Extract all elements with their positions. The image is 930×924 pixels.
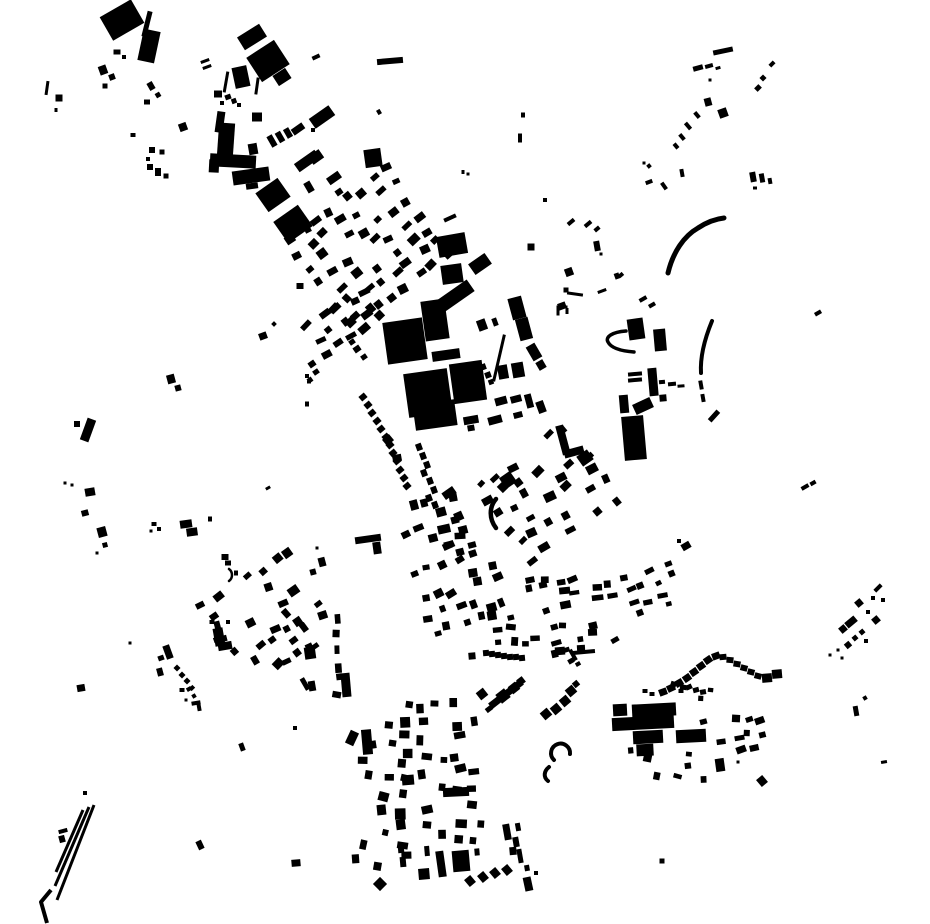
building-footprint [155,168,161,176]
building-footprint [316,547,319,550]
building-footprint [382,317,427,364]
building-footprint [180,519,193,529]
building-footprint [726,657,733,664]
building-footprint [577,645,585,651]
building-footprint [452,850,471,872]
building-footprint [364,770,372,780]
building-footprint [334,614,340,624]
building-footprint [421,753,432,761]
building-footprint [613,704,628,717]
building-footprint [335,663,342,673]
building-footprint [372,542,382,555]
building-footprint [311,128,315,132]
building-footprint [477,820,484,828]
building-footprint [164,174,169,179]
building-footprint [559,623,566,629]
building-footprint [700,689,707,695]
building-footprint [489,651,496,658]
building-footprint [519,655,526,662]
building-footprint [248,143,259,155]
building-footprint [71,484,74,487]
building-footprint [668,382,676,387]
building-footprint [684,762,691,769]
building-footprint [732,715,740,723]
building-footprint [103,84,108,89]
building-footprint [518,134,522,143]
building-footprint [468,652,476,660]
building-footprint [76,684,85,692]
building-footprint [470,716,478,726]
building-footprint [488,561,497,570]
building-footprint [621,415,647,461]
building-footprint [114,50,121,55]
building-footprint [401,852,411,859]
building-footprint [146,157,150,161]
building-footprint [487,610,498,620]
building-footprint [440,263,463,285]
building-footprint [511,362,525,379]
building-footprint [493,627,503,633]
building-footprint [385,721,394,729]
building-footprint [600,253,603,256]
building-footprint [619,395,630,414]
building-footprint [653,329,667,352]
building-footprint [604,580,611,588]
building-footprint [701,776,707,783]
building-footprint [462,170,465,174]
building-footprint [438,830,446,839]
building-footprint [643,162,646,165]
building-footprint [150,530,153,533]
building-footprint [467,173,470,176]
building-footprint [744,730,750,737]
city-figure-ground-svg [0,0,930,924]
building-footprint [186,527,198,536]
building-footprint [454,835,463,844]
building-footprint [522,641,529,646]
building-footprint [416,735,423,745]
building-footprint [373,862,382,871]
building-footprint [405,701,413,709]
building-footprint [452,722,462,731]
building-footprint [588,629,597,636]
building-footprint [96,552,99,555]
building-footprint [483,650,490,657]
building-footprint [528,244,535,251]
building-footprint [430,700,438,706]
building-footprint [422,821,431,829]
building-footprint [209,159,220,173]
building-footprint [677,384,684,388]
building-footprint [225,561,231,566]
building-footprint [454,532,465,539]
building-footprint [577,636,583,642]
building-footprint [543,198,547,202]
building-footprint [762,673,773,683]
building-footprint [336,673,342,680]
figure-ground-map [0,0,930,924]
building-footprint [293,726,297,730]
building-footprint [442,621,451,630]
building-footprint [252,113,262,122]
building-footprint [83,791,87,795]
building-footprint [473,577,483,587]
building-footprint [440,757,447,763]
building-footprint [633,730,664,745]
building-footprint [650,692,655,696]
building-footprint [468,568,478,578]
building-footprint [864,639,868,643]
building-footprint [55,108,58,112]
building-footprint [829,654,832,657]
building-footprint [468,768,479,775]
building-footprint [234,571,238,576]
building-footprint [566,308,569,314]
building-footprint [376,804,386,815]
building-footprint [160,150,165,155]
building-footprint [511,637,518,646]
building-footprint [871,596,875,600]
building-footprint [226,620,230,624]
building-footprint [881,598,885,602]
building-footprint [676,729,707,744]
building-footprint [399,789,407,798]
building-footprint [509,847,517,856]
building-footprint [305,374,309,378]
building-footprint [733,660,741,667]
building-footprint [709,79,712,82]
building-footprint [122,55,126,59]
building-footprint [524,865,530,872]
building-footprint [396,819,406,830]
building-footprint [837,649,840,652]
building-footprint [305,402,309,407]
building-footprint [530,635,540,641]
building-footprint [416,704,424,714]
building-footprint [708,688,714,693]
map-background [0,0,930,924]
building-footprint [521,113,525,118]
building-footprint [627,317,646,340]
building-footprint [147,164,153,170]
building-footprint [129,642,132,645]
building-footprint [180,688,185,692]
building-footprint [643,689,648,693]
building-footprint [214,91,222,98]
building-footprint [866,610,870,614]
building-footprint [400,717,410,728]
building-footprint [467,785,476,792]
building-footprint [388,740,396,747]
building-footprint [332,630,339,638]
building-footprint [64,482,67,485]
building-footprint [467,424,475,431]
building-footprint [352,854,360,863]
building-footprint [753,187,757,190]
building-footprint [467,800,478,809]
building-footprint [220,101,224,105]
building-footprint [217,122,235,157]
building-footprint [449,698,457,707]
building-footprint [659,380,665,385]
building-footprint [659,394,667,402]
building-footprint [719,654,726,661]
building-footprint [534,871,538,875]
building-footprint [513,654,520,661]
building-footprint [660,859,665,864]
building-footprint [495,639,501,645]
building-footprint [541,576,549,583]
building-footprint [474,848,480,855]
building-footprint [559,587,571,595]
building-footprint [144,100,150,105]
building-footprint [222,554,229,560]
building-footprint [841,657,844,660]
building-footprint [418,868,430,880]
building-footprint [715,758,726,772]
building-footprint [455,819,467,828]
building-footprint [291,859,301,867]
building-footprint [772,669,783,679]
building-footprint [424,846,430,856]
building-footprint [385,774,394,781]
building-footprint [686,752,692,757]
building-footprint [417,769,426,779]
building-footprint [592,584,602,591]
building-footprint [297,283,304,289]
building-footprint [469,837,476,845]
building-footprint [56,95,63,102]
building-footprint [452,786,462,793]
building-footprint [622,424,631,437]
building-footprint [74,421,80,427]
building-footprint [495,652,502,659]
building-footprint [628,747,634,754]
building-footprint [149,147,155,153]
building-footprint [84,487,95,497]
building-footprint [506,623,516,630]
building-footprint [185,699,188,702]
building-footprint [363,148,382,168]
building-footprint [419,717,429,725]
building-footprint [237,103,241,107]
building-footprint [525,584,533,592]
building-footprint [450,753,459,762]
building-footprint [397,759,406,768]
building-footprint [448,492,458,502]
building-footprint [131,133,136,137]
building-footprint [737,761,740,764]
building-footprint [152,522,157,526]
building-footprint [366,740,377,749]
building-footprint [399,730,410,738]
building-footprint [677,539,681,543]
building-footprint [403,749,413,758]
building-footprint [395,808,406,820]
building-footprint [501,653,508,660]
building-footprint [334,645,339,654]
building-footprint [507,654,514,661]
building-footprint [208,517,212,522]
building-footprint [422,594,430,602]
building-footprint [358,757,368,764]
building-footprint [157,527,161,531]
building-footprint [438,783,445,791]
building-footprint [698,696,703,702]
